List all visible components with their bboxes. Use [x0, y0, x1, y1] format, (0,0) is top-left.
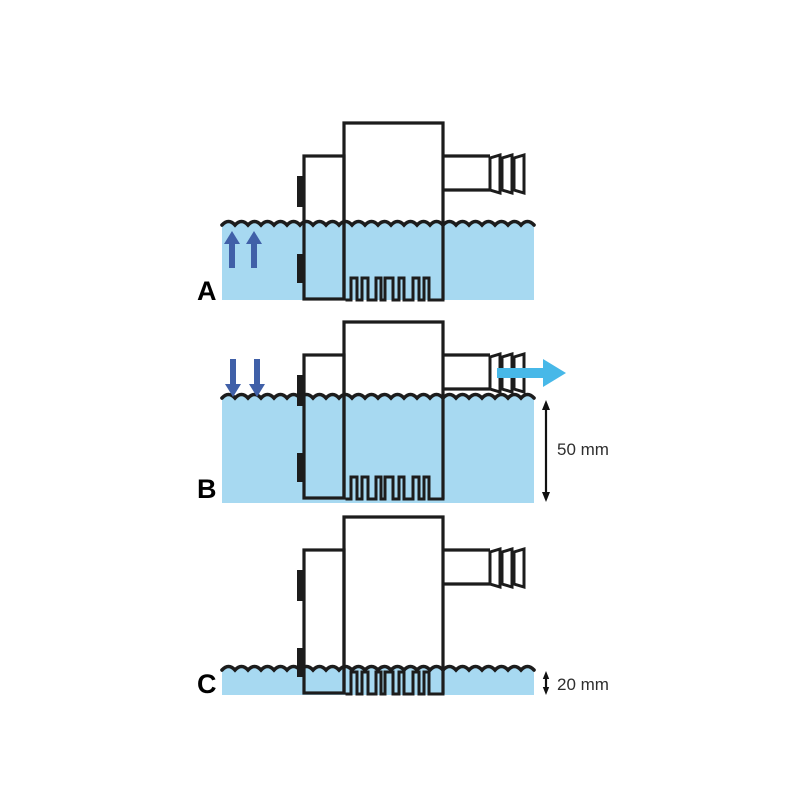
- diagram-canvas: A 50 mm B 20 mm C: [0, 0, 800, 800]
- panel-a: A: [197, 123, 534, 306]
- water-fill-b: [222, 395, 534, 504]
- dimension-arrowhead-up-icon: [543, 671, 549, 679]
- depth-dimension-20mm: 20 mm: [543, 671, 609, 695]
- pump-water-level-diagram: A 50 mm B 20 mm C: [0, 0, 800, 800]
- water-fill-a: [222, 222, 534, 301]
- panel-label-a: A: [197, 276, 217, 306]
- depth-value-20mm: 20 mm: [557, 675, 609, 694]
- down-flow-arrow-icon: [249, 359, 265, 397]
- dimension-arrowhead-up-icon: [542, 400, 550, 410]
- depth-value-50mm: 50 mm: [557, 440, 609, 459]
- depth-dimension-50mm: 50 mm: [542, 400, 609, 502]
- dimension-arrowhead-down-icon: [543, 687, 549, 695]
- down-flow-arrow-icon: [225, 359, 241, 397]
- dimension-arrowhead-down-icon: [542, 492, 550, 502]
- panel-label-c: C: [197, 669, 217, 699]
- panel-c: 20 mm C: [197, 517, 609, 699]
- panel-label-b: B: [197, 474, 217, 504]
- panel-b: 50 mm B: [197, 322, 609, 504]
